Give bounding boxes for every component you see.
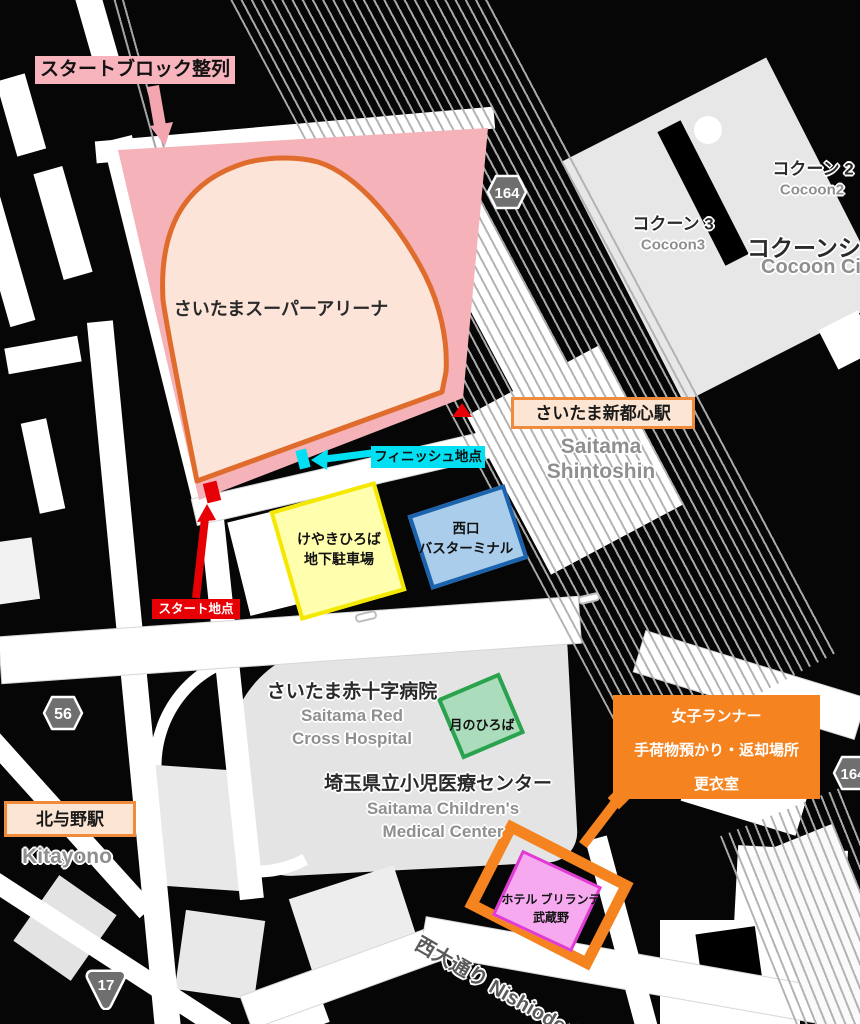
route-shield-164-right: 164 bbox=[830, 753, 860, 793]
start-block-label: スタートブロック整列 bbox=[35, 56, 235, 84]
medical-center-name-en: Medical Center bbox=[383, 822, 504, 842]
station-name-en: Shintoshin bbox=[547, 460, 656, 484]
women-area-line1: 女子ランナー bbox=[613, 705, 820, 726]
start-label: スタート地点 bbox=[152, 599, 240, 619]
women-area-box: 女子ランナー 手荷物預かり・返却場所 更衣室 bbox=[613, 695, 820, 799]
women-area-line3: 更衣室 bbox=[613, 773, 820, 794]
cocoon-city-name-en: Cocoon City bbox=[761, 256, 860, 279]
start-arrow-shaft bbox=[196, 518, 205, 598]
bus-terminal-label-line2: バスターミナル bbox=[419, 537, 514, 557]
arena-name: さいたまスーパーアリーナ bbox=[174, 295, 389, 321]
cocoon3-name-jp: コクーン 3 bbox=[632, 210, 713, 235]
svg-text:164: 164 bbox=[494, 185, 520, 202]
route-shield-17: 17 bbox=[84, 966, 128, 1010]
route-shield-56: 56 bbox=[40, 693, 86, 733]
start-arrow-head bbox=[197, 504, 216, 522]
medical-center-name-en: Saitama Children's bbox=[367, 799, 519, 819]
medical-center-name-jp: 埼玉県立小児医療センター bbox=[324, 769, 552, 796]
map-canvas: さいたまスーパーアリーナ さいたま新都心駅 Saitama Shintoshin… bbox=[0, 0, 860, 1024]
svg-text:164: 164 bbox=[840, 766, 860, 783]
hotel-label-line2: 武蔵野 bbox=[533, 909, 569, 926]
start-block-arrow-head bbox=[150, 122, 173, 146]
station-label-shintoshin: さいたま新都心駅 bbox=[511, 397, 695, 429]
hospital-name-en: Saitama Red bbox=[301, 706, 403, 726]
start-block-arrow-shaft bbox=[153, 86, 160, 126]
hotel-label-line1: ホテル ブリランテ bbox=[501, 891, 600, 908]
women-area-line2: 手荷物預かり・返却場所 bbox=[613, 739, 820, 760]
svg-text:56: 56 bbox=[54, 706, 72, 723]
hospital-name-jp: さいたま赤十字病院 bbox=[267, 677, 437, 704]
svg-text:17: 17 bbox=[98, 977, 115, 994]
course-red-triangle bbox=[452, 403, 472, 417]
plaza-label: 月のひろば bbox=[449, 715, 514, 734]
station-label-kitayono: 北与野駅 bbox=[4, 801, 136, 837]
parking-label-line2: 地下駐車場 bbox=[304, 549, 374, 569]
bus-terminal-label-line1: 西口 bbox=[453, 517, 480, 537]
parking-label-line1: けやきひろば bbox=[297, 529, 381, 549]
hospital-name-en: Cross Hospital bbox=[292, 729, 412, 749]
cocoon3-name-en: Cocoon3 bbox=[641, 237, 705, 254]
station-name-en: Kitayono bbox=[22, 845, 112, 869]
route-shield-164: 164 bbox=[484, 172, 530, 212]
cocoon2-name-en: Cocoon2 bbox=[780, 182, 844, 199]
finish-arrow-shaft bbox=[325, 453, 372, 459]
cocoon2-name-jp: コクーン 2 bbox=[772, 155, 853, 180]
station-name-en: Saitama bbox=[561, 435, 642, 459]
finish-label: フィニッシュ地点 bbox=[371, 446, 485, 468]
